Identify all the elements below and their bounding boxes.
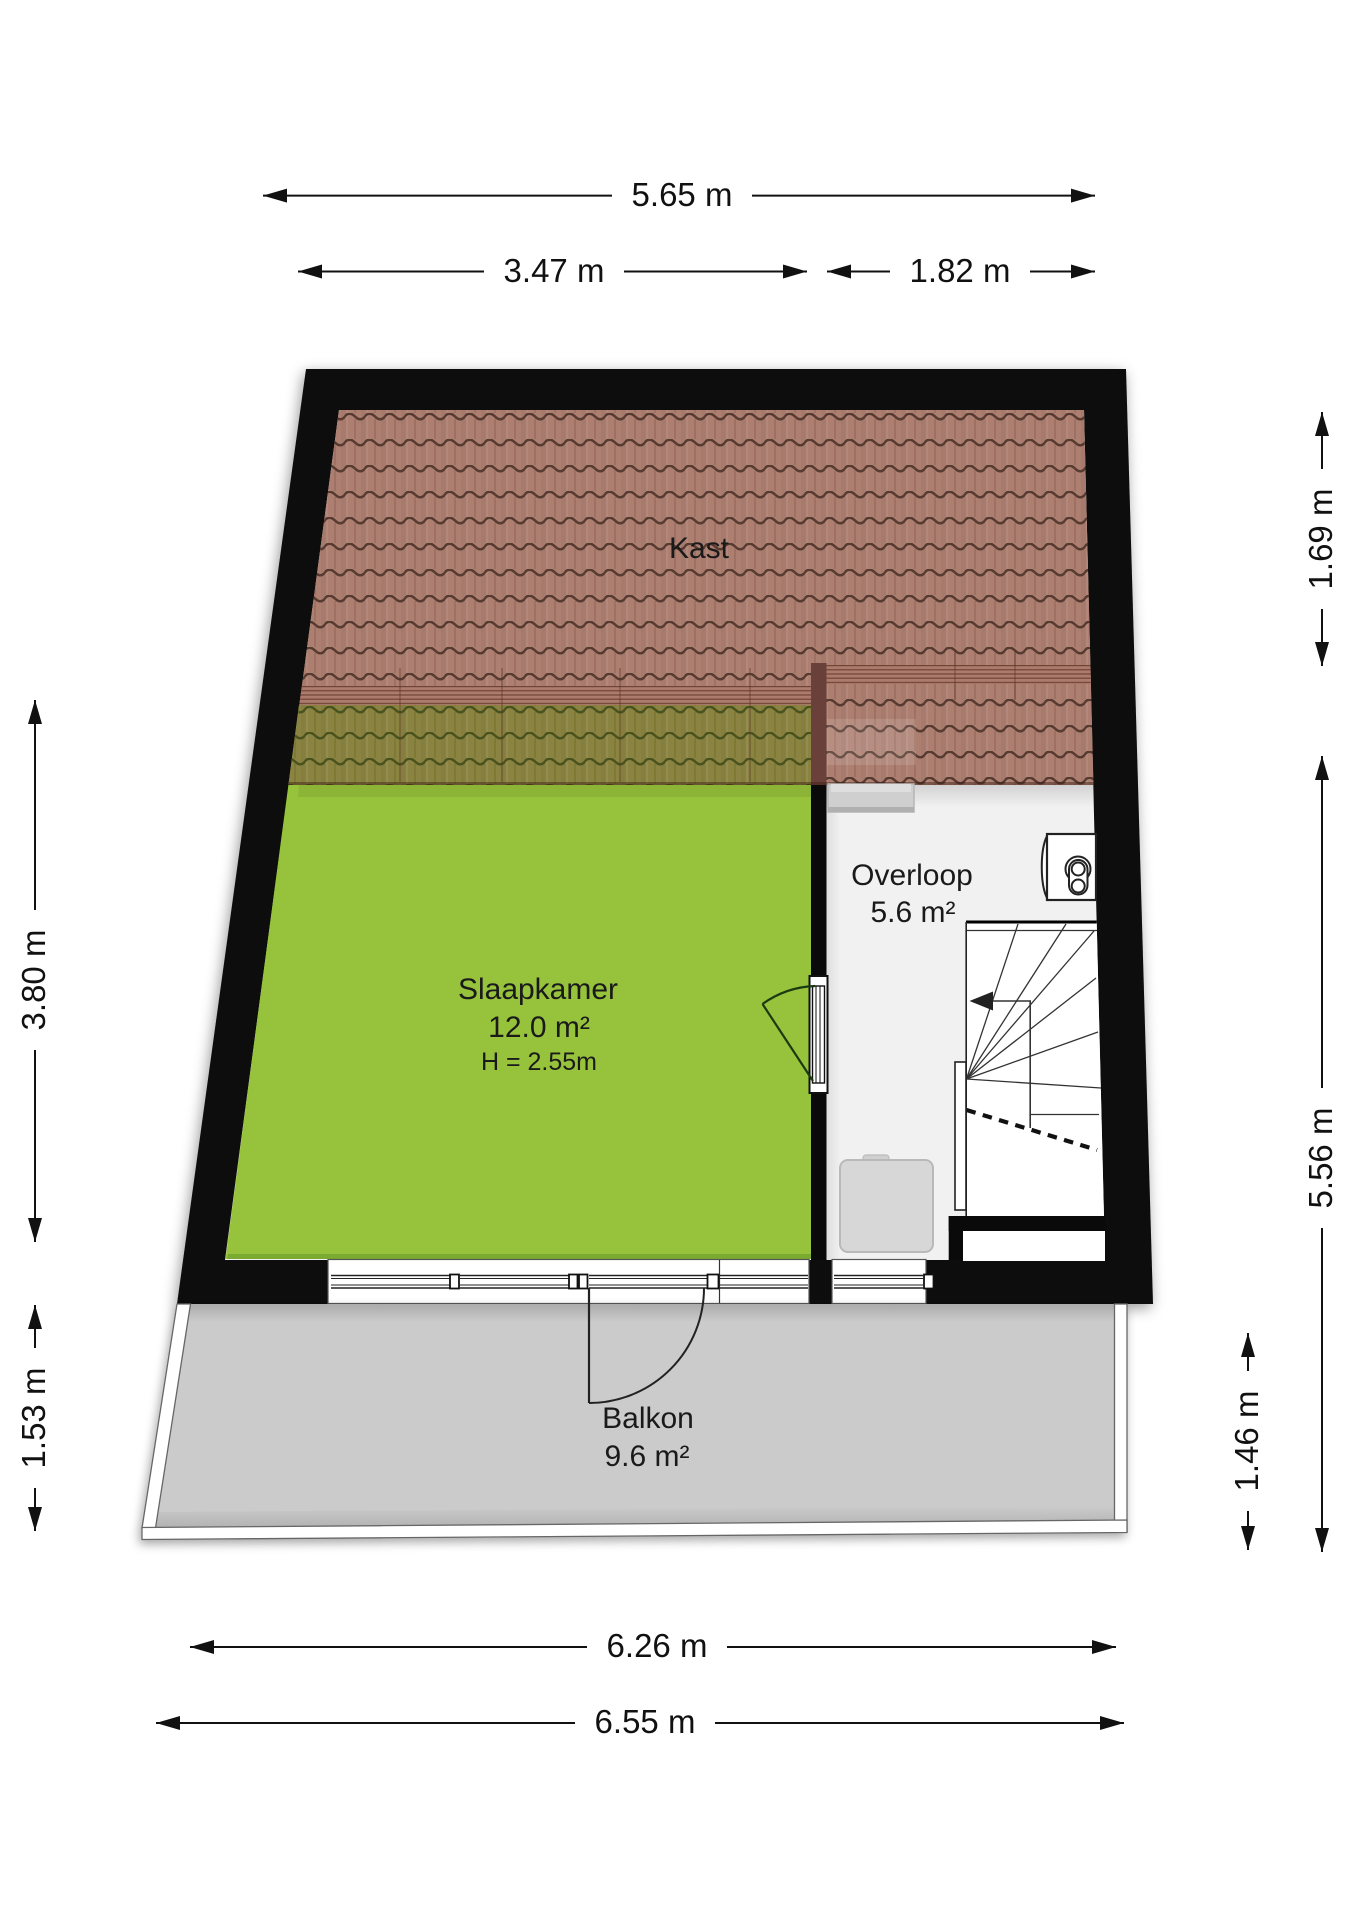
svg-text:1.82 m: 1.82 m bbox=[910, 252, 1011, 289]
svg-text:Overloop: Overloop bbox=[851, 859, 973, 892]
svg-text:9.6 m²: 9.6 m² bbox=[604, 1440, 689, 1473]
svg-text:5.65 m: 5.65 m bbox=[632, 176, 733, 213]
svg-text:Kast: Kast bbox=[669, 532, 730, 565]
svg-text:5.6 m²: 5.6 m² bbox=[870, 896, 955, 929]
svg-text:5.56 m: 5.56 m bbox=[1302, 1108, 1339, 1209]
svg-text:3.47 m: 3.47 m bbox=[504, 252, 605, 289]
svg-text:H = 2.55m: H = 2.55m bbox=[481, 1048, 597, 1076]
svg-text:6.26 m: 6.26 m bbox=[607, 1627, 708, 1664]
svg-text:1.46 m: 1.46 m bbox=[1228, 1391, 1265, 1492]
svg-text:1.69 m: 1.69 m bbox=[1302, 489, 1339, 590]
svg-text:3.80 m: 3.80 m bbox=[15, 930, 52, 1031]
svg-text:6.55 m: 6.55 m bbox=[595, 1703, 696, 1740]
svg-text:12.0 m²: 12.0 m² bbox=[488, 1011, 590, 1044]
svg-text:Slaapkamer: Slaapkamer bbox=[458, 973, 618, 1006]
svg-text:Balkon: Balkon bbox=[602, 1402, 694, 1435]
svg-text:1.53 m: 1.53 m bbox=[15, 1368, 52, 1469]
